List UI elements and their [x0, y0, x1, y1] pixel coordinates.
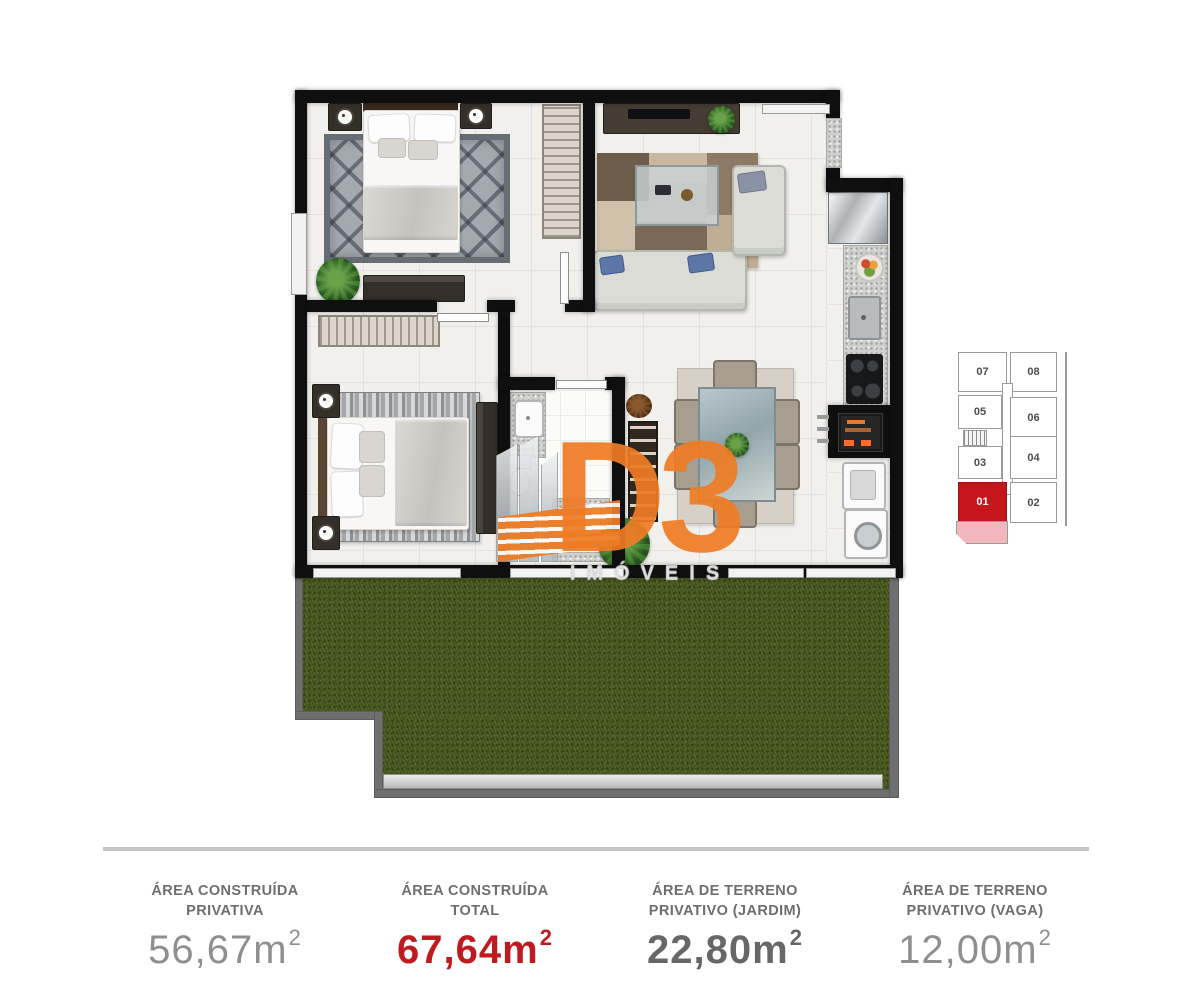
- keyplan-outline: [1065, 352, 1067, 526]
- stat-label: ÁREA DE TERRENO PRIVATIVO (JARDIM): [600, 882, 850, 921]
- stat-label: ÁREA CONSTRUÍDA TOTAL: [350, 882, 600, 921]
- oven-display: [847, 420, 865, 424]
- door-bedroom1: [560, 252, 569, 304]
- plant-icon: [708, 106, 735, 133]
- stat-value: 12,00m2: [850, 925, 1100, 973]
- sofa-pillow: [687, 252, 715, 273]
- bedroom1-nightstand-left: [328, 103, 362, 131]
- oven-handle: [844, 440, 854, 446]
- bedroom2-bench: [476, 402, 498, 534]
- watermark-logo-subtitle: IMÓVEIS: [520, 562, 780, 585]
- tv: [628, 109, 690, 119]
- bedroom2-blanket: [395, 419, 467, 526]
- door-bedroom2: [437, 313, 489, 322]
- kitchen-sink: [848, 296, 881, 340]
- stat-area-terreno-vaga: ÁREA DE TERRENO PRIVATIVO (VAGA) 12,00m2: [850, 882, 1100, 973]
- table-decor: [681, 189, 693, 201]
- garden-fence-bottom: [374, 789, 899, 798]
- stat-value: 56,67m2: [100, 925, 350, 973]
- bedroom2-nightstand-top: [312, 384, 340, 418]
- cooktop: [846, 354, 883, 404]
- bedroom2-wardrobe: [318, 315, 440, 347]
- bedroom2-headboard: [318, 417, 327, 528]
- stat-area-terreno-jardim: ÁREA DE TERRENO PRIVATIVO (JARDIM) 22,80…: [600, 882, 850, 973]
- plant-icon: [316, 258, 360, 304]
- oven-knob: [817, 427, 829, 431]
- apartment-floor-plan-page: D3 IMÓVEIS 07 08 05 06 03 04 01 02 ÁREA …: [0, 0, 1200, 1000]
- keyplan-unit-07: 07: [958, 352, 1007, 392]
- bedroom1-wardrobe: [542, 104, 581, 239]
- stat-area-construida-privativa: ÁREA CONSTRUÍDA PRIVATIVA 56,67m2: [100, 882, 350, 973]
- watermark-logo: D3: [552, 418, 738, 576]
- stat-label: ÁREA DE TERRENO PRIVATIVO (VAGA): [850, 882, 1100, 921]
- laundry-tank: [842, 462, 886, 510]
- wall-bathroom-top-a: [498, 377, 555, 390]
- keyplan-unit-05: 05: [958, 395, 1002, 429]
- stat-value-highlighted: 67,64m2: [350, 925, 600, 973]
- keyplan-unit-08: 08: [1010, 352, 1057, 392]
- garden-fence-notch-vertical: [374, 711, 383, 798]
- unit-locator-keyplan: 07 08 05 06 03 04 01 02: [948, 344, 1082, 570]
- garden-curb: [383, 774, 883, 789]
- keyplan-stairs-icon: [963, 430, 987, 446]
- washing-machine: [844, 509, 888, 559]
- oven: [838, 413, 883, 452]
- wall-bedroom1-living: [583, 102, 595, 312]
- keyplan-unit-03: 03: [958, 446, 1002, 479]
- sliding-door-garden: [806, 568, 896, 578]
- divider-line: [103, 847, 1089, 851]
- private-garden-grass: [302, 578, 889, 718]
- bedroom1-nightstand-right: [460, 103, 492, 129]
- wall-right: [890, 178, 903, 578]
- refrigerator: [828, 192, 888, 244]
- lamp-icon: [467, 107, 485, 125]
- garden-fence-notch-horizontal: [295, 711, 383, 720]
- oven-knob: [817, 415, 829, 419]
- bedroom1-blanket: [363, 185, 458, 240]
- stat-area-construida-total: ÁREA CONSTRUÍDA TOTAL 67,64m2: [350, 882, 600, 973]
- stat-value: 22,80m2: [600, 925, 850, 973]
- garden-fence-left: [295, 578, 303, 718]
- fruit-bowl: [855, 253, 884, 282]
- lamp-icon: [317, 392, 335, 410]
- oven-display: [845, 428, 871, 432]
- wall-bedroom1-bottom-b: [487, 300, 515, 312]
- bathroom-basin: [514, 400, 544, 438]
- oven-knob: [817, 439, 829, 443]
- lamp-icon: [336, 108, 354, 126]
- bedroom1-small-pillow: [378, 138, 406, 158]
- lamp-icon: [317, 524, 335, 542]
- keyplan-unit-04: 04: [1010, 436, 1057, 479]
- drain: [526, 416, 530, 420]
- coffee-table: [635, 165, 719, 226]
- tank-basin: [850, 470, 876, 500]
- bedroom1-dresser: [363, 275, 465, 302]
- keyplan-garden-highlight: [956, 521, 1008, 544]
- window-living-top: [762, 104, 830, 114]
- bedroom2-small-pillow: [359, 431, 385, 463]
- dining-chair: [713, 360, 757, 390]
- window-bedroom2-bottom: [313, 568, 461, 578]
- bedroom1-pillow: [414, 113, 457, 142]
- sofa-pillow: [599, 254, 625, 275]
- door-bathroom: [556, 380, 607, 389]
- wall-bedroom1-bottom-a: [307, 300, 437, 312]
- bedroom1-small-pillow: [408, 140, 438, 160]
- table-decor: [655, 185, 671, 195]
- oven-handle: [861, 440, 871, 446]
- keyplan-unit-02: 02: [1010, 482, 1057, 523]
- area-stats-row: ÁREA CONSTRUÍDA PRIVATIVA 56,67m2 ÁREA C…: [100, 882, 1100, 973]
- bedroom2-nightstand-bottom: [312, 516, 340, 550]
- keyplan-unit-06: 06: [1010, 397, 1057, 438]
- window-bedroom1-left: [291, 213, 307, 295]
- wall-top: [295, 90, 840, 103]
- faucet: [861, 315, 866, 320]
- bedroom2-small-pillow: [359, 465, 385, 497]
- garden-fence-right: [889, 578, 899, 798]
- stat-label: ÁREA CONSTRUÍDA PRIVATIVA: [100, 882, 350, 921]
- sofa-pillow: [737, 170, 768, 194]
- keyplan-unit-01-highlighted: 01: [958, 482, 1007, 522]
- wall-left: [295, 90, 307, 578]
- pass-through-counter: [826, 118, 842, 168]
- washer-door: [854, 522, 882, 550]
